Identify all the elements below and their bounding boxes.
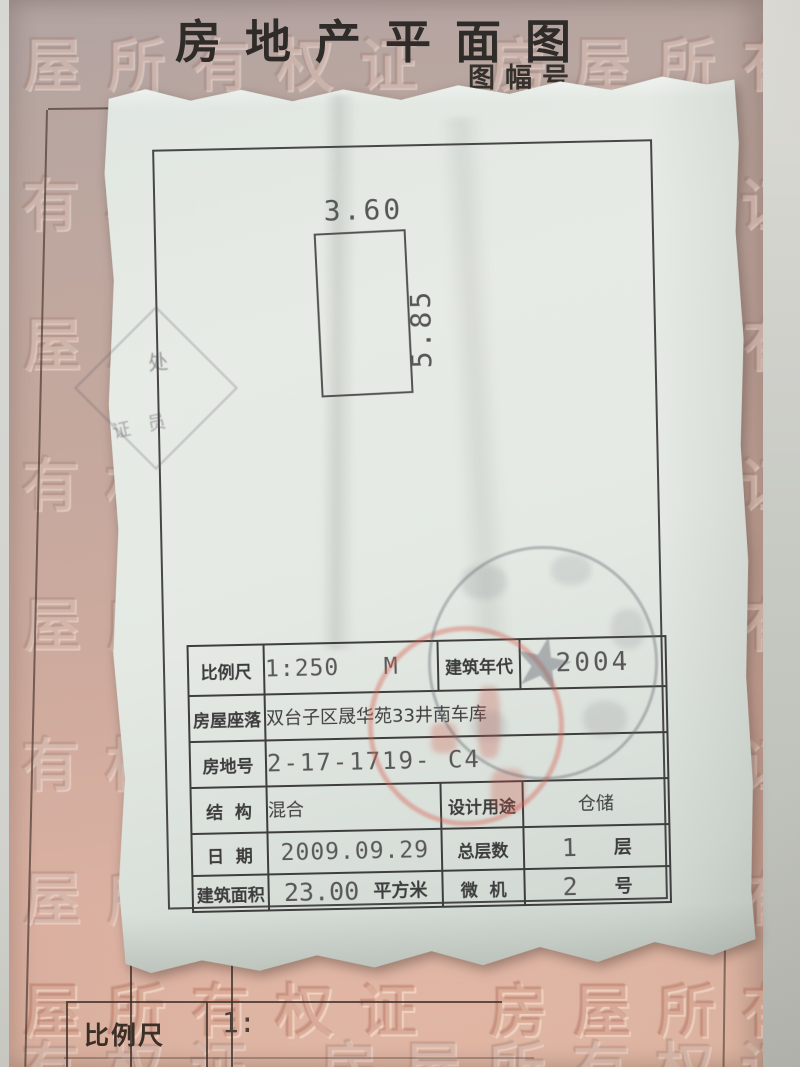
seal-smudge: [583, 701, 627, 737]
address-label: 房屋座落: [189, 694, 266, 742]
parcel-number-label: 房地号: [190, 740, 267, 788]
computer-number: 2: [562, 871, 578, 900]
round-company-seal: ★: [428, 546, 658, 780]
seal-smudge: [461, 565, 507, 599]
scale-label: 比例尺: [188, 644, 265, 696]
computer-number-value: 2 号: [524, 866, 671, 905]
attached-plan-sheet: 3.60 5.85 比例尺 1:250 M 建筑年代 2004 房屋座落 双台子…: [101, 71, 757, 974]
date-value: 2009.09.29: [267, 829, 442, 875]
computer-unit: 号: [614, 872, 633, 898]
seal-smudge: [471, 711, 507, 741]
floor-unit: 层: [614, 833, 633, 859]
structure-label: 结 构: [190, 786, 267, 834]
dimension-width-label: 3.60: [298, 192, 429, 228]
bottom-scale-value: 1:: [222, 1006, 256, 1039]
computer-number-label: 微 机: [442, 869, 525, 907]
plan-sheet-paper: 3.60 5.85 比例尺 1:250 M 建筑年代 2004 房屋座落 双台子…: [101, 71, 757, 974]
seal-smudge: [611, 609, 645, 649]
floor-count: 1: [561, 832, 577, 861]
corner-seal-text: 处: [147, 345, 169, 376]
area-unit: 平方米: [373, 876, 428, 903]
floor-area-value: 23.00 平方米: [268, 871, 443, 911]
photo-margin-left: [0, 0, 9, 1067]
dimension-depth-label: 5.85: [403, 263, 439, 394]
total-floors-label: 总层数: [441, 827, 524, 871]
document-photo: 房屋所有权证 房屋所有权证 房屋所有权证 房屋所有权证 房屋所有权证 房屋所有权…: [0, 0, 800, 1067]
date-label: 日 期: [191, 832, 268, 876]
seal-smudge: [551, 555, 591, 585]
area-number: 23.00: [284, 876, 360, 907]
bottom-form-line: [64, 1057, 534, 1059]
bottom-scale-label: 比例尺: [84, 1016, 165, 1052]
photo-margin-right: [763, 0, 800, 1067]
total-floors-value: 1 层: [523, 824, 670, 869]
garage-outline: [314, 229, 414, 397]
floor-area-label: 建筑面积: [192, 874, 269, 912]
